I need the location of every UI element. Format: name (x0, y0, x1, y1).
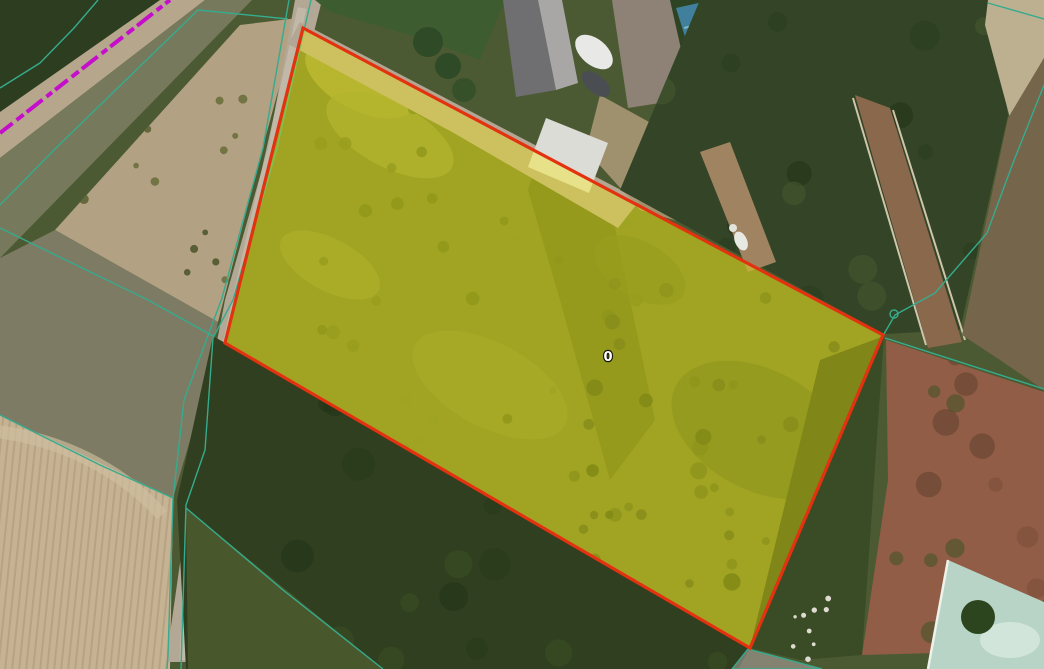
field-boundary-upper-west (0, 228, 213, 336)
boundary-along-road-northwest (0, 10, 288, 205)
cadastral-overlay-layer: 0 (0, 0, 1044, 669)
field-boundary-lower-west (0, 415, 173, 498)
boundary-topright-corner (988, 3, 1044, 19)
boundary-southeast-branch (186, 508, 383, 669)
boundary-topleft (0, 0, 98, 88)
parcel-label: 0 (603, 350, 612, 365)
restriction-boundary-line (0, 0, 170, 133)
map-canvas[interactable]: 0 (0, 0, 1044, 669)
neighbor-parcel-outline (732, 649, 822, 669)
boundary-east (885, 338, 1044, 389)
boundary-northeast (884, 85, 1044, 334)
selected-parcel-polygon[interactable] (225, 28, 883, 648)
